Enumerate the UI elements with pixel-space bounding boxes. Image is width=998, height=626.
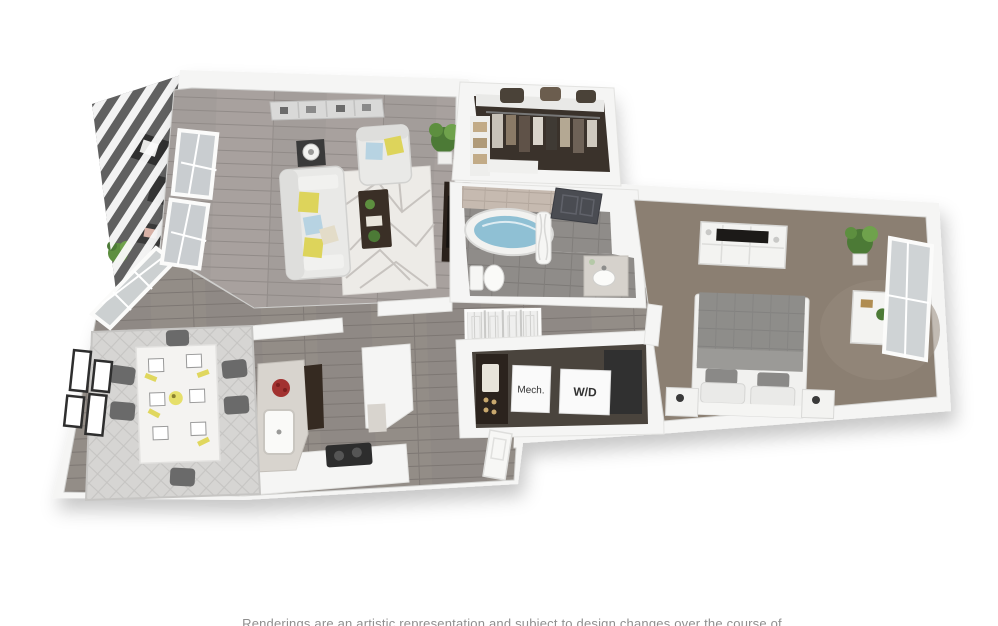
closet-bench: [488, 159, 538, 174]
vanity-plant: [589, 259, 595, 265]
nightstand: [666, 387, 699, 416]
floorplan-viewer: Mech. W/D: [0, 0, 998, 626]
laundry-shelf: [476, 354, 508, 424]
walk-in-closet: [452, 82, 621, 186]
vanity-sink: [584, 256, 628, 296]
bed-pillow: [700, 382, 745, 404]
fruit-bowl: [272, 379, 290, 397]
sofa: [279, 166, 351, 280]
pillow-yellow: [303, 237, 324, 258]
bed: [691, 292, 809, 418]
entry-door: [551, 188, 602, 224]
armchair: [356, 124, 412, 185]
dresser: [699, 222, 787, 268]
kitchen-sink: [264, 410, 294, 454]
washer-dryer-closet: W/D: [559, 369, 611, 415]
mech-label: Mech.: [517, 385, 545, 397]
pillow-blue: [365, 142, 383, 160]
kitchen-counter-marble: [367, 404, 386, 433]
nightstand: [802, 389, 835, 418]
side-table-lamp: [296, 139, 326, 167]
mech-closet: Mech.: [511, 365, 551, 412]
coffee-table: [358, 189, 392, 249]
stove: [325, 442, 372, 467]
bedroom-window: [884, 238, 932, 360]
bedroom: [634, 200, 940, 421]
bed-throw: [697, 348, 804, 372]
pillow-yellow: [298, 192, 319, 213]
disclaimer-text: Renderings are an artistic representatio…: [232, 616, 792, 626]
laundry-mech-room: Mech. W/D: [456, 330, 664, 438]
wd-label: W/D: [573, 385, 597, 400]
pillow-yellow: [384, 136, 404, 156]
wall-shelf: [270, 99, 384, 120]
shower-curtain: [536, 212, 551, 264]
floor-plan-svg: Mech. W/D: [0, 0, 998, 626]
toilet: [470, 265, 504, 291]
